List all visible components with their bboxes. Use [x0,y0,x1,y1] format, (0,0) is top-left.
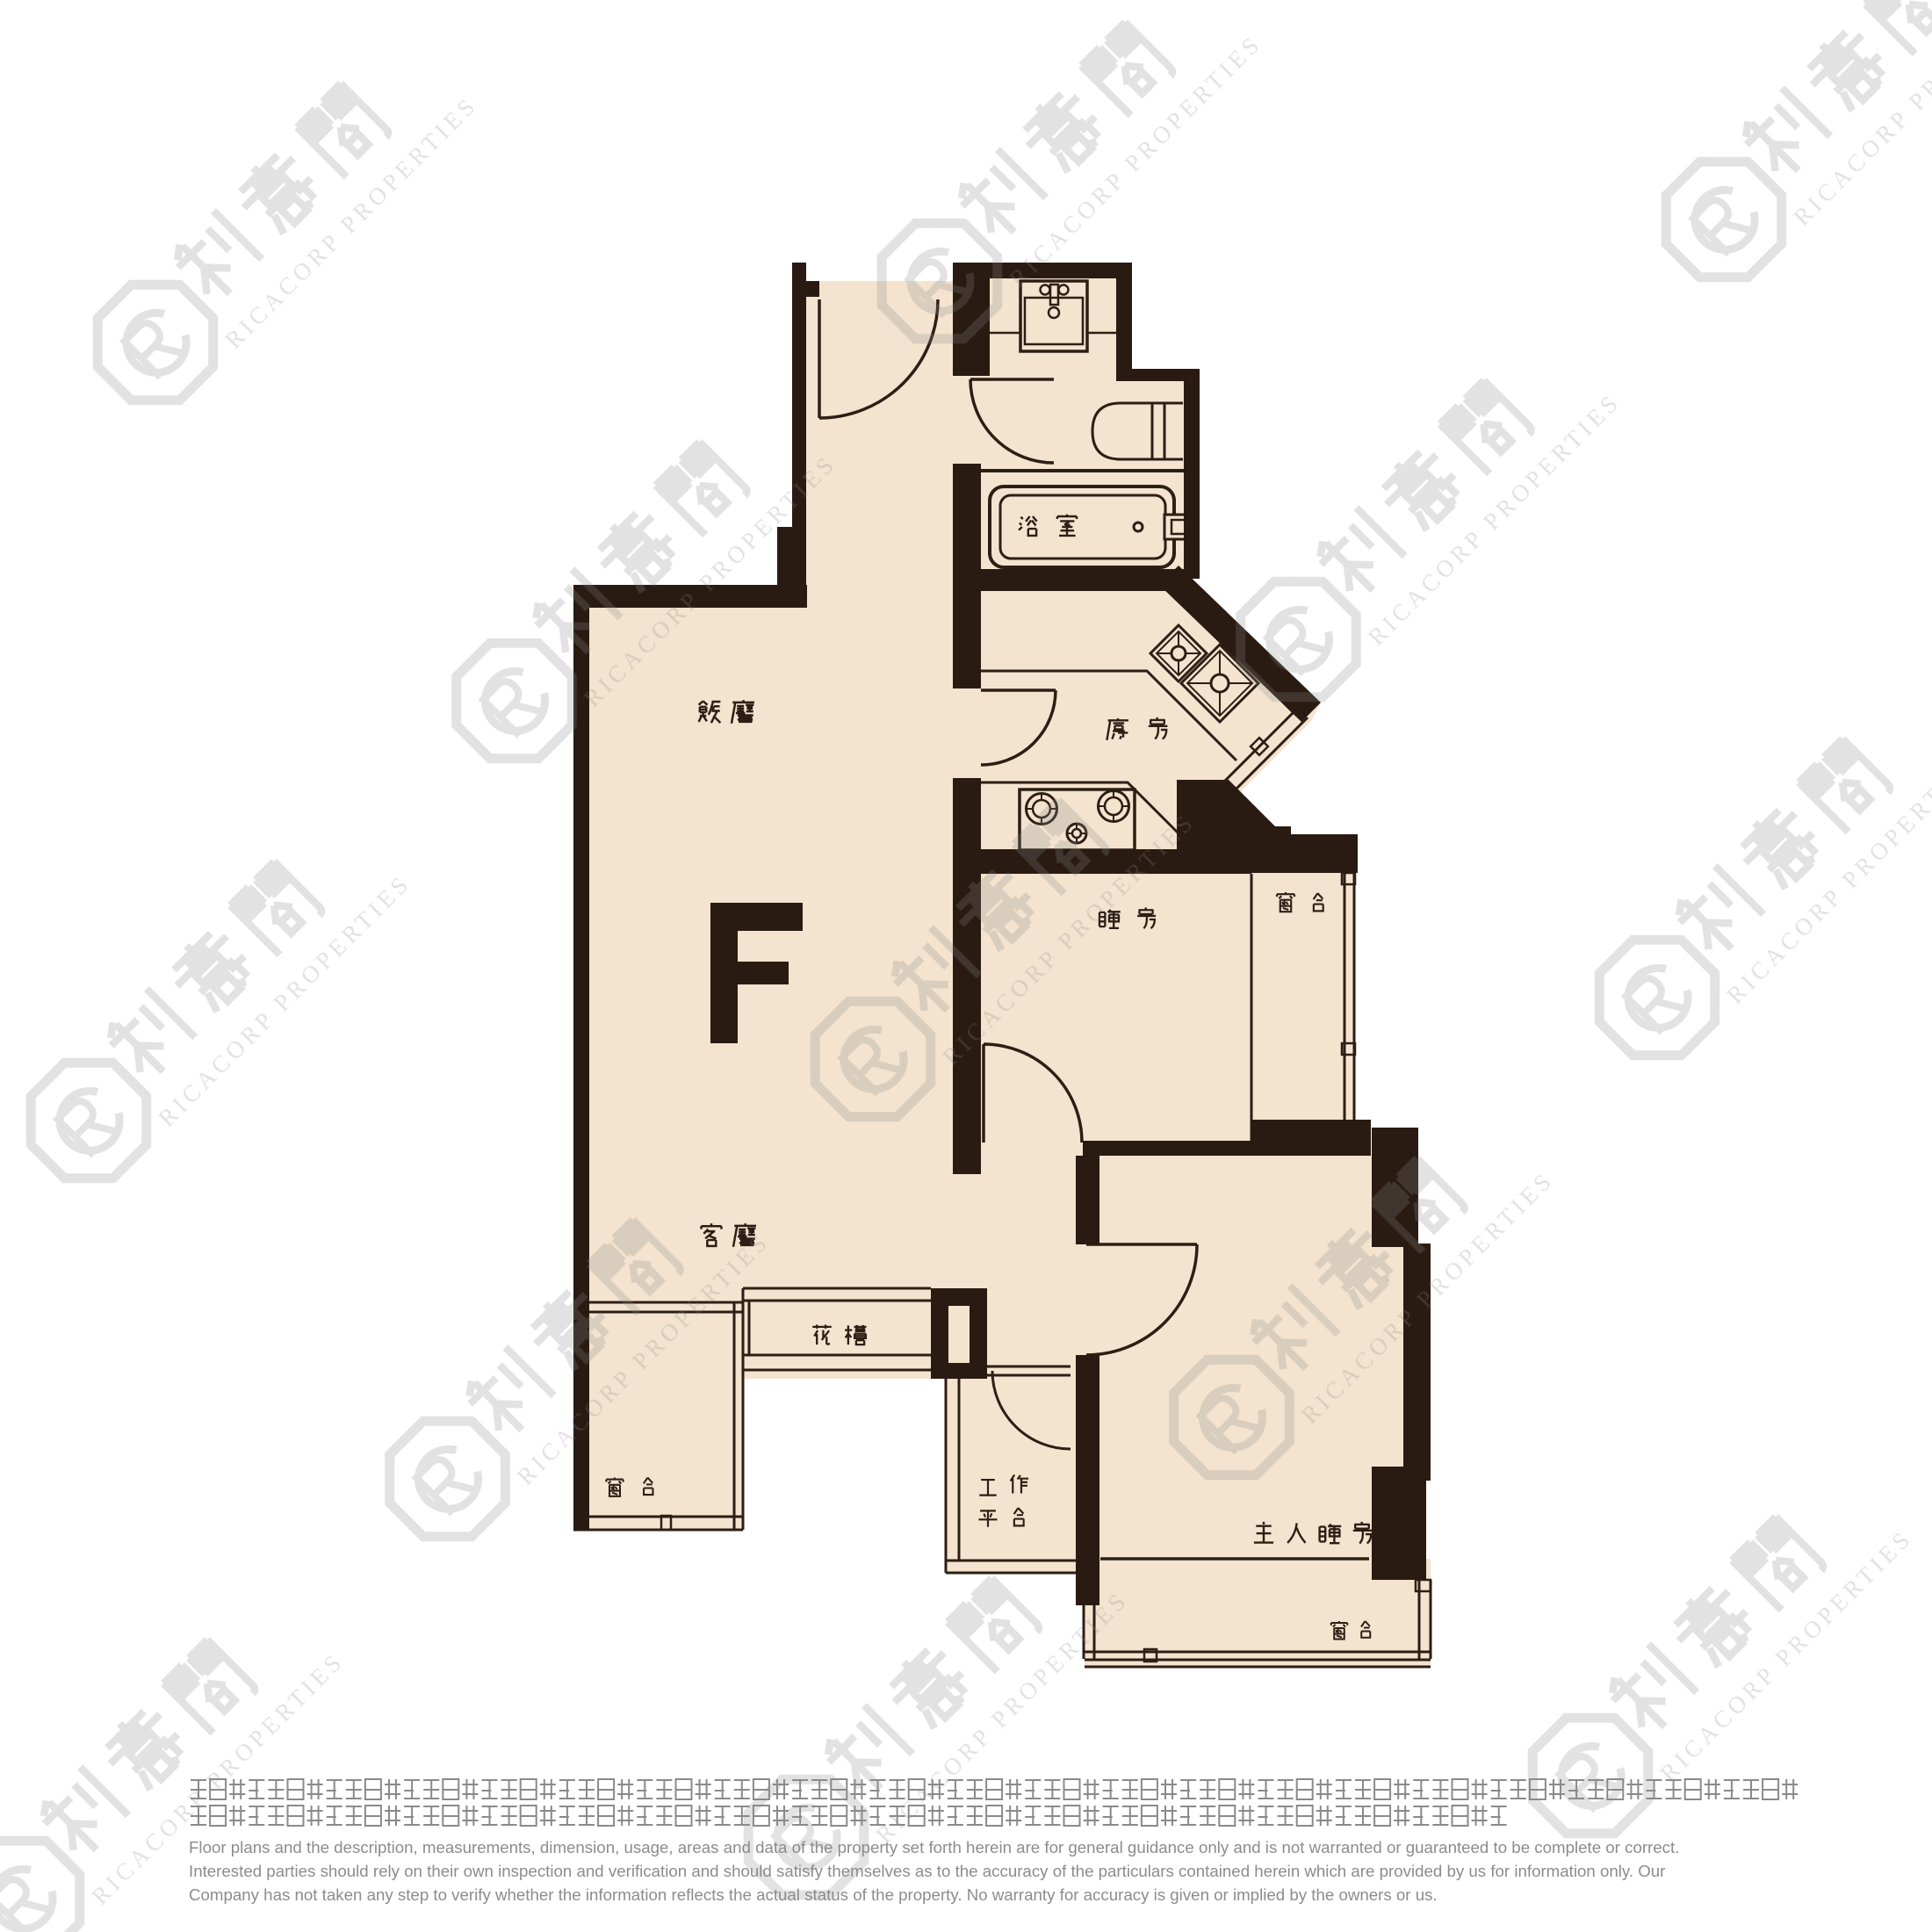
svg-text:Floor plans and the descriptio: Floor plans and the description, measure… [189,1838,1679,1856]
svg-text:Interested parties should rely: Interested parties should rely on their … [189,1862,1665,1880]
